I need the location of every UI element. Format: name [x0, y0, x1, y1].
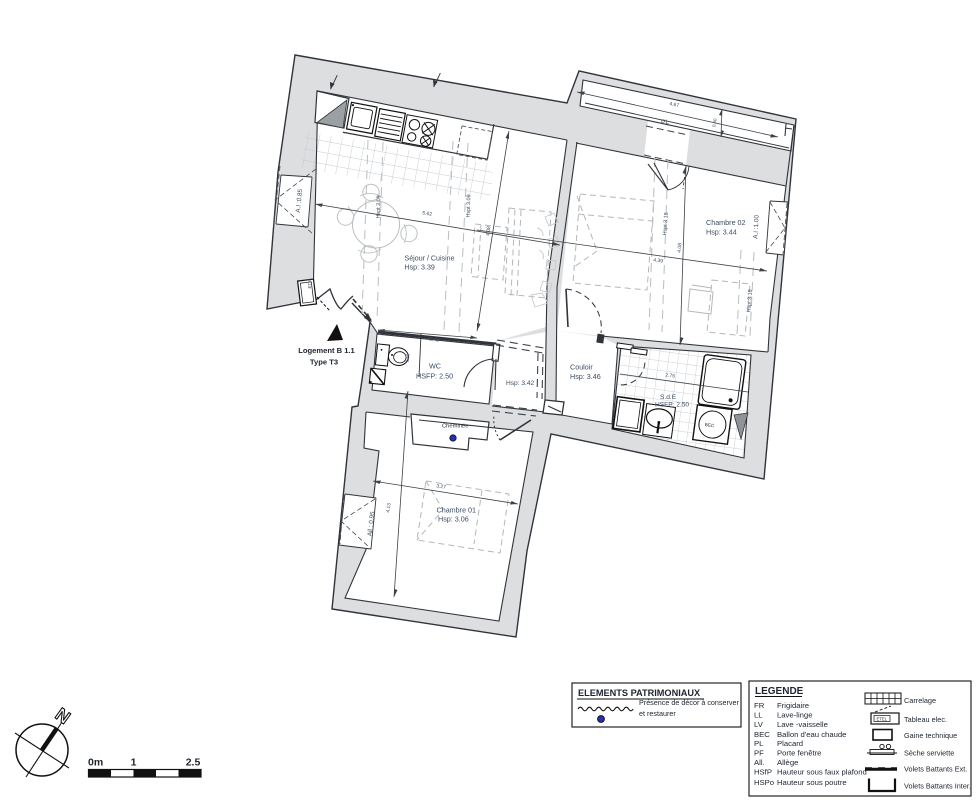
svg-text:ETEL: ETEL	[307, 277, 312, 289]
svg-text:Frigidaire: Frigidaire	[777, 701, 809, 710]
svg-text:Hauteur sous faux plafond: Hauteur sous faux plafond	[777, 768, 867, 777]
svg-text:Hsp: 3.39: Hsp: 3.39	[405, 264, 435, 272]
svg-text:Hsp: 3.42: Hsp: 3.42	[506, 380, 535, 387]
svg-text:Cheminée: Cheminée	[442, 424, 468, 430]
svg-text:Ballon d'eau chaude: Ballon d'eau chaude	[777, 730, 846, 739]
svg-text:BEC: BEC	[754, 730, 770, 739]
svg-text:Couloir: Couloir	[570, 363, 593, 372]
svg-text:Carrelage: Carrelage	[904, 696, 936, 705]
svg-text:2.76: 2.76	[665, 373, 676, 380]
svg-text:Hsp: 3.46: Hsp: 3.46	[570, 372, 601, 381]
svg-text:HSFP: 2.50: HSFP: 2.50	[416, 372, 453, 381]
svg-text:Tableau elec.: Tableau elec.	[904, 715, 947, 724]
svg-text:et restaurer: et restaurer	[639, 709, 676, 718]
svg-text:Hsp: 3.06: Hsp: 3.06	[438, 515, 469, 524]
svg-text:Présence de décor à conserver: Présence de décor à conserver	[639, 698, 739, 707]
svg-text:0m: 0m	[88, 757, 103, 769]
svg-text:Hsp: 3.44: Hsp: 3.44	[706, 228, 737, 237]
svg-text:Logement B 1.1: Logement B 1.1	[298, 346, 355, 355]
svg-text:Allège: Allège	[777, 758, 798, 767]
svg-text:Lave -vaisselle: Lave -vaisselle	[777, 720, 828, 729]
svg-text:Gaine technique: Gaine technique	[904, 731, 957, 740]
svg-text:S.d.E: S.d.E	[660, 394, 677, 401]
svg-text:Hspt 3.09: Hspt 3.09	[376, 195, 383, 218]
svg-text:LEGENDE: LEGENDE	[755, 686, 804, 697]
svg-text:HSPo: HSPo	[754, 778, 774, 787]
svg-text:PL: PL	[754, 739, 764, 748]
svg-text:Volets Battants Inter.: Volets Battants Inter.	[904, 782, 971, 791]
svg-text:1.50: 1.50	[405, 353, 411, 363]
svg-text:Lave-linge: Lave-linge	[777, 711, 812, 720]
svg-text:ETEL: ETEL	[877, 717, 888, 722]
svg-text:2.5: 2.5	[186, 757, 201, 769]
svg-text:Volets Battants Ext.: Volets Battants Ext.	[904, 765, 967, 774]
svg-text:Hauteur sous poutre: Hauteur sous poutre	[777, 778, 847, 787]
svg-text:Séjour / Cuisine: Séjour / Cuisine	[405, 255, 455, 263]
svg-text:4.08: 4.08	[485, 226, 492, 237]
svg-text:LV: LV	[754, 720, 764, 729]
svg-text:Hspt 3.09: Hspt 3.09	[466, 194, 473, 217]
svg-text:Porte fenêtre: Porte fenêtre	[777, 749, 821, 758]
svg-text:Chambre 02: Chambre 02	[706, 218, 746, 227]
svg-text:Sèche serviette: Sèche serviette	[904, 749, 954, 758]
svg-text:Chambre 01: Chambre 01	[437, 506, 477, 515]
svg-text:4.08: 4.08	[677, 243, 684, 253]
svg-text:FR: FR	[754, 701, 765, 710]
svg-text:Placard: Placard	[777, 739, 803, 748]
svg-text:LL: LL	[754, 711, 763, 720]
svg-text:Type T3: Type T3	[310, 358, 338, 367]
svg-text:ELEMENTS PATRIMONIAUX: ELEMENTS PATRIMONIAUX	[578, 688, 701, 698]
svg-text:1: 1	[131, 757, 137, 769]
svg-text:PF: PF	[754, 749, 764, 758]
svg-text:All.: All.	[754, 758, 765, 767]
svg-text:HSfP: HSfP	[754, 768, 772, 777]
svg-text:A.I :1.00: A.I :1.00	[752, 214, 760, 239]
svg-text:PL: PL	[661, 119, 669, 126]
svg-text:HSFP: 2.50: HSFP: 2.50	[655, 402, 689, 409]
svg-text:WC: WC	[429, 362, 441, 371]
